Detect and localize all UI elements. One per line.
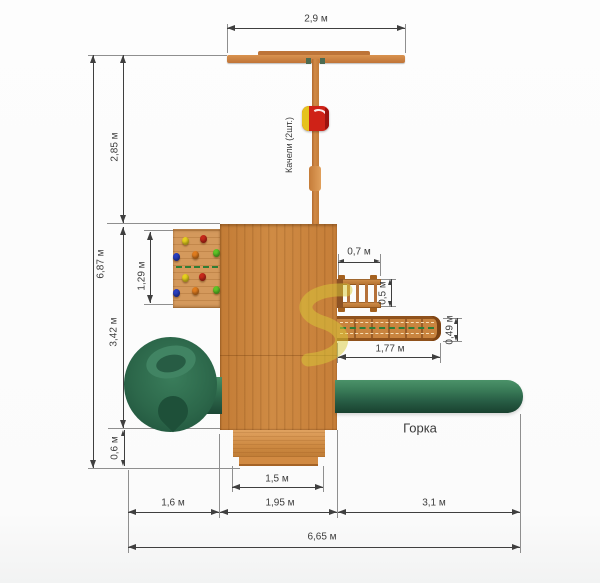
climb-hold-red <box>199 273 206 281</box>
climb-hold-yellow <box>182 274 189 282</box>
arrowhead-left <box>128 544 136 550</box>
climb-hold-green <box>213 249 220 257</box>
arrowhead-down <box>121 460 125 466</box>
blueprint-canvas: Качели (2шт.) Горка 2,9 м 2,85 м 6,87 м … <box>0 0 600 583</box>
dim-label: 0,7 м <box>347 247 371 258</box>
straight-slide <box>335 380 523 413</box>
arrowhead-right <box>512 509 520 515</box>
arrowhead-down <box>120 420 126 428</box>
dim-label: 0,5 м <box>378 281 389 305</box>
climb-hold-orange <box>192 287 199 295</box>
climb-hold-red <box>200 235 207 243</box>
arrowhead-left <box>227 25 235 31</box>
arrowhead-left <box>220 509 228 515</box>
dim-label: 2,85 м <box>110 132 121 161</box>
extension-line <box>144 230 174 231</box>
dim-label: 1,6 м <box>161 498 185 509</box>
dim-label: 6,87 м <box>96 249 107 278</box>
arrowhead-left <box>128 509 136 515</box>
swing-seat-yellow-edge <box>302 106 309 131</box>
beam-bracket-left <box>306 58 311 64</box>
arrowhead-right <box>432 354 440 360</box>
arrowhead-left <box>338 509 346 515</box>
arrowhead-down <box>147 295 153 303</box>
dim-label: 1,95 м <box>265 498 294 509</box>
extension-line <box>337 430 338 518</box>
swing-pole <box>312 59 319 225</box>
dim-label: 0,49 м <box>445 315 456 344</box>
arrowhead-up <box>147 232 153 240</box>
dim-label: 0,6 м <box>110 436 121 460</box>
arrowhead-down <box>120 215 126 223</box>
climb-wall-center-dashed-line <box>176 266 218 268</box>
arrowhead-up <box>120 55 126 63</box>
entrance-step-1 <box>233 430 325 457</box>
entrance-step-2 <box>239 457 318 466</box>
extension-line <box>88 468 240 469</box>
climb-hold-blue <box>173 253 180 261</box>
watermark-logo <box>278 278 378 378</box>
extension-line <box>440 343 441 363</box>
extension-line <box>107 223 220 224</box>
swing-seat-dark-edge <box>325 108 329 129</box>
climb-hold-yellow <box>182 237 189 245</box>
slide-annotation: Горка <box>403 421 437 436</box>
swing-pole-connector <box>309 166 321 191</box>
arrowhead-down <box>388 301 392 307</box>
extension-line <box>219 434 220 518</box>
dim-label: 1,5 м <box>265 474 289 485</box>
extension-line <box>144 304 174 305</box>
arrowhead-up <box>90 55 96 63</box>
dim-label: 3,1 м <box>422 498 446 509</box>
climb-hold-green <box>213 286 220 294</box>
dim-label: 1,29 м <box>137 261 148 290</box>
extension-line <box>380 254 381 276</box>
arrowhead-right <box>329 509 337 515</box>
arrowhead-down <box>90 460 96 468</box>
arrowhead-up <box>121 430 125 436</box>
extension-line <box>405 24 406 53</box>
arrowhead-up <box>388 279 392 285</box>
arrowhead-right <box>315 484 323 490</box>
arrowhead-right <box>374 259 380 263</box>
swing-annotation: Качели (2шт.) <box>284 117 294 173</box>
extension-line <box>88 55 227 56</box>
arrowhead-left <box>338 259 344 263</box>
beam-bracket-right <box>320 58 325 64</box>
extension-line <box>520 414 521 553</box>
arrowhead-up <box>120 227 126 235</box>
climb-hold-orange <box>192 251 199 259</box>
dim-label: 6,65 м <box>307 532 336 543</box>
climb-hold-blue <box>173 289 180 297</box>
arrowhead-right <box>211 509 219 515</box>
climbing-wall <box>173 229 220 308</box>
arrowhead-right <box>397 25 405 31</box>
extension-line <box>323 466 324 492</box>
arrowhead-left <box>232 484 240 490</box>
dim-label: 2,9 м <box>304 14 328 25</box>
extension-line <box>338 254 339 276</box>
dim-label: 3,42 м <box>109 317 120 346</box>
dim-label: 1,77 м <box>375 344 404 355</box>
arrowhead-right <box>512 544 520 550</box>
